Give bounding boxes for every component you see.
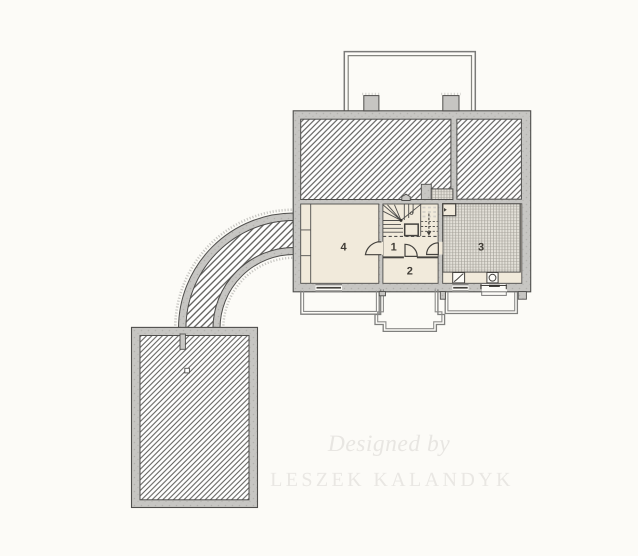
svg-text:3: 3 xyxy=(478,241,484,253)
svg-text:Designed by: Designed by xyxy=(327,431,450,457)
svg-text:LESZEK KALANDYK: LESZEK KALANDYK xyxy=(270,469,514,491)
svg-text:1: 1 xyxy=(391,241,397,253)
svg-text:2: 2 xyxy=(407,266,413,278)
svg-text:4: 4 xyxy=(340,241,347,253)
